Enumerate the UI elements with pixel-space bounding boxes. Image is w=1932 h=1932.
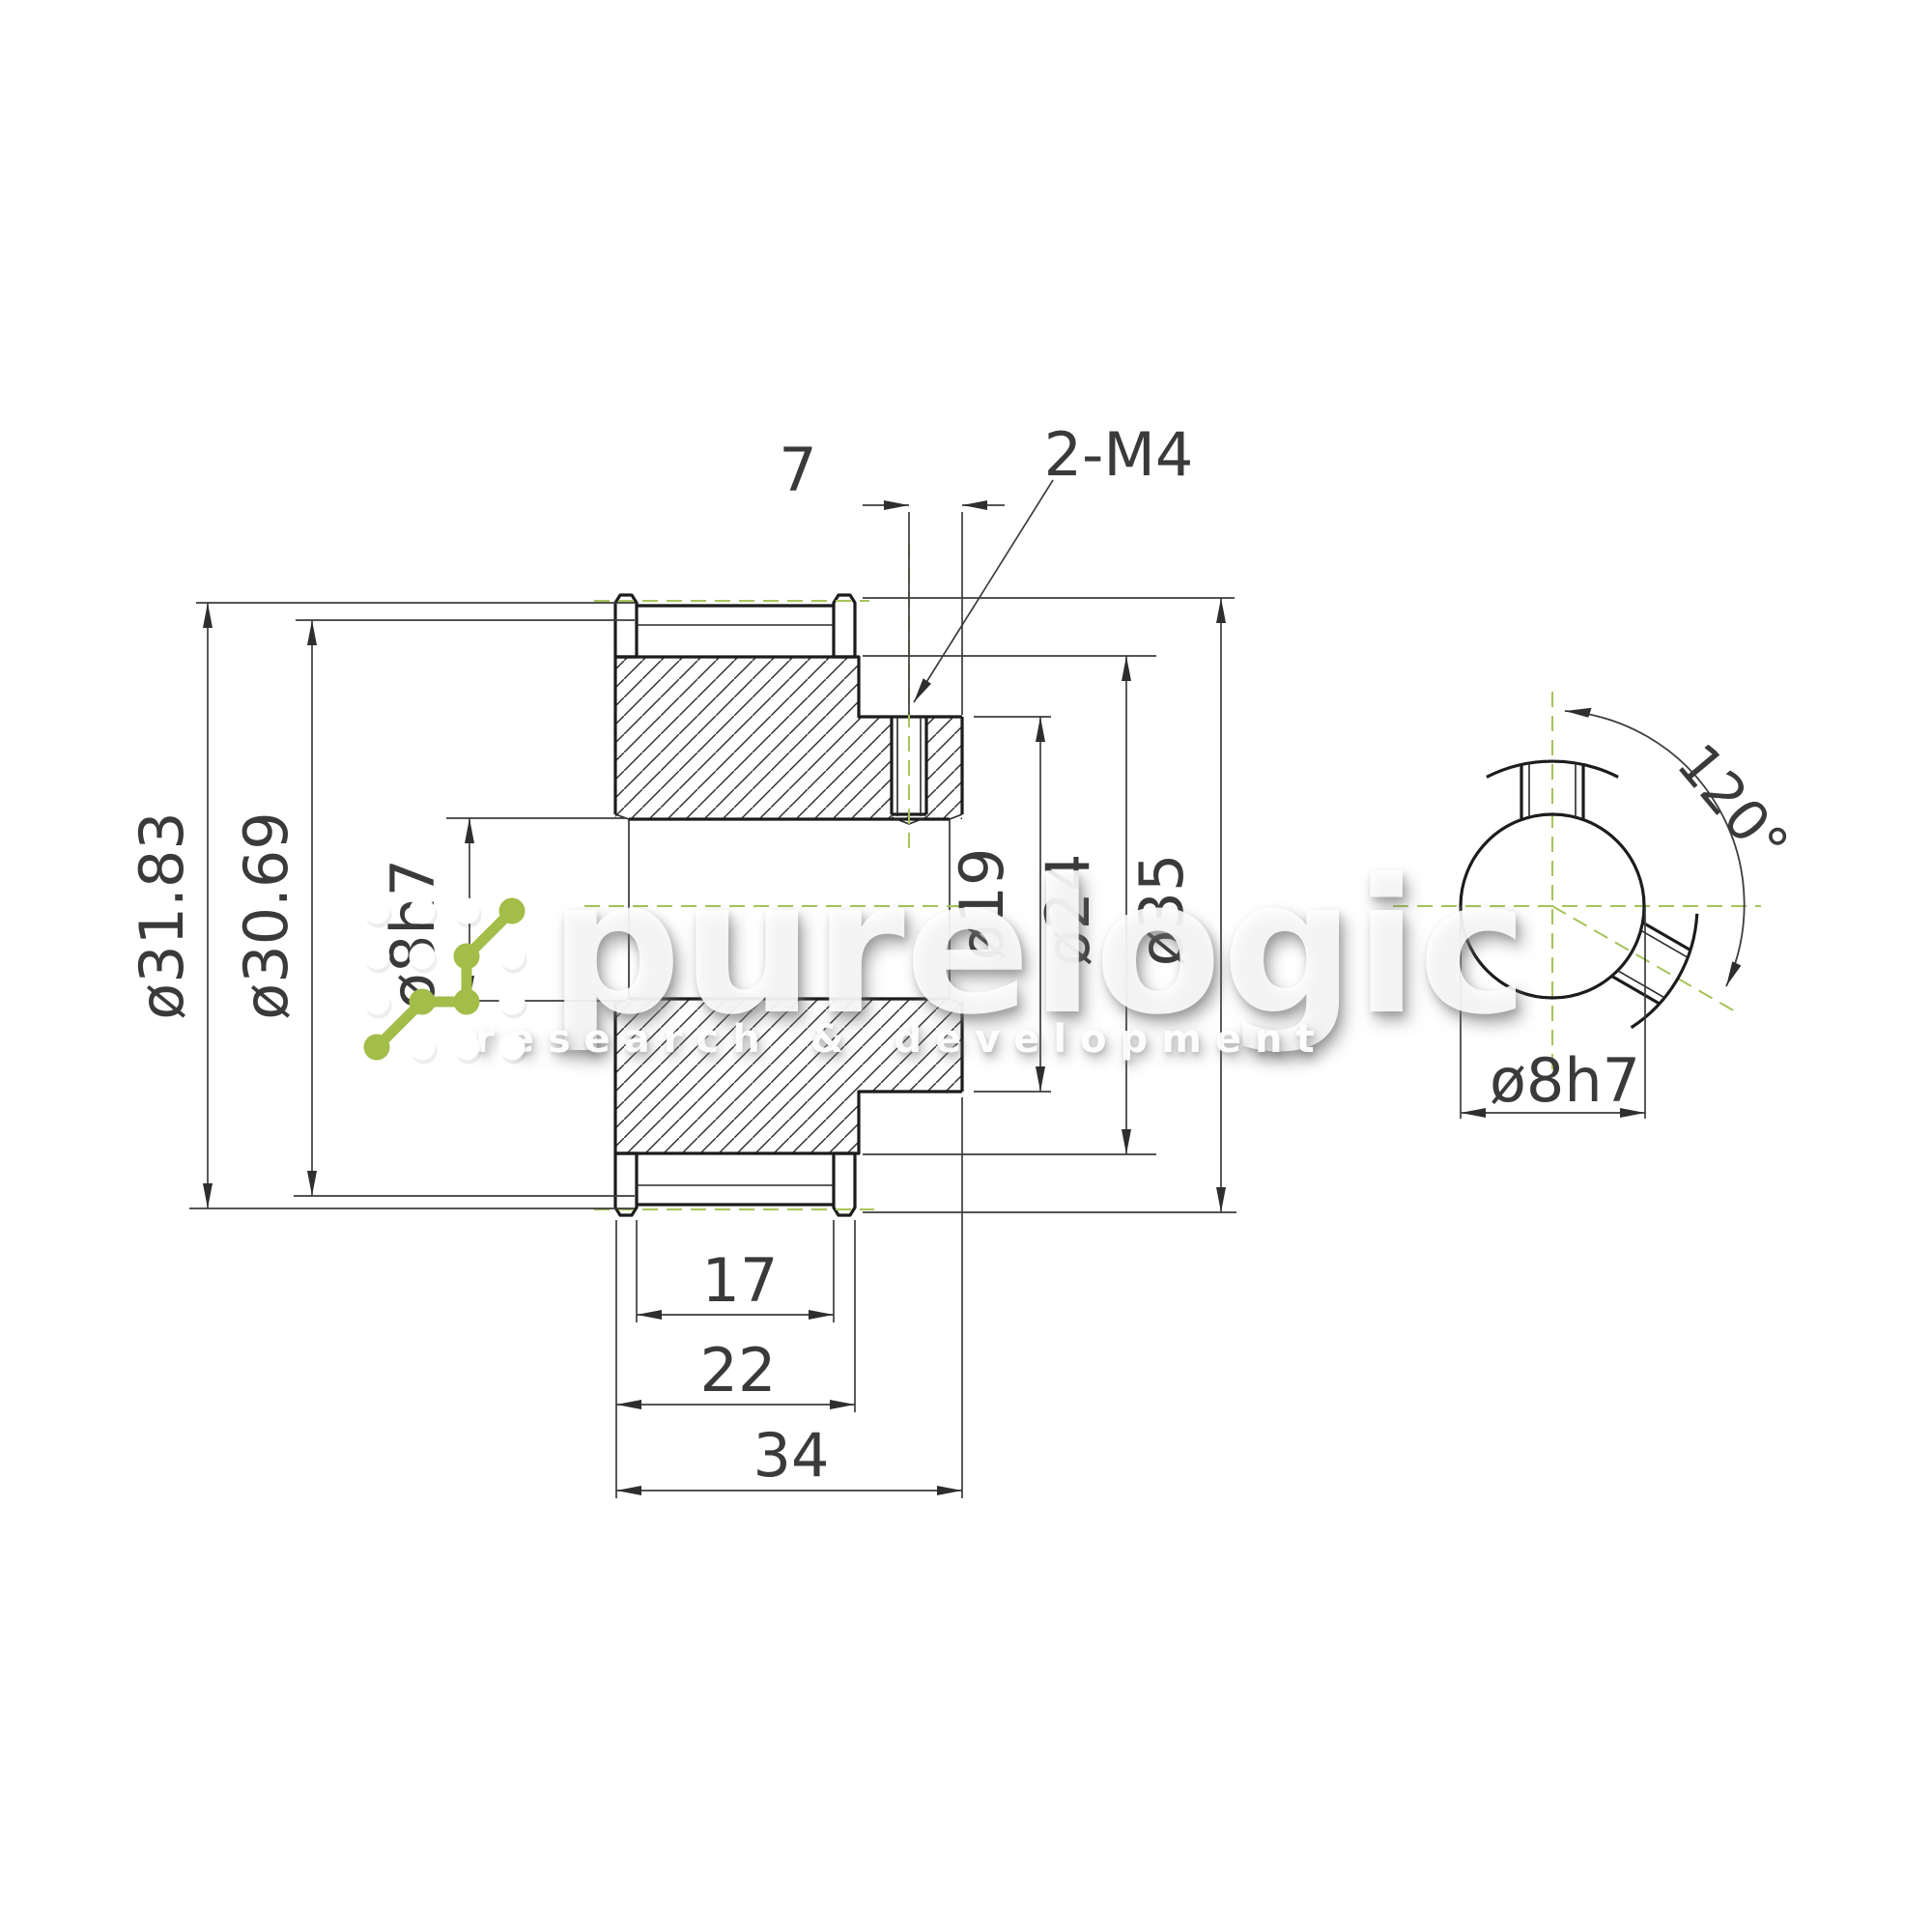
label-bore-left: ø8h7	[378, 859, 448, 1009]
label-bore-side: ø8h7	[1490, 1045, 1640, 1116]
leader-line-2m4	[914, 480, 1053, 702]
dimension-labels: ø31.83 ø30.69 ø8h7 ø19 ø24 ø35 7 2-M4 17…	[127, 419, 1802, 1491]
main-section-view	[584, 543, 980, 1215]
label-outer-diameter: ø30.69	[231, 811, 301, 1019]
label-hub-diameter: ø19	[947, 848, 1017, 961]
label-flange-diameter: ø35	[1126, 854, 1197, 967]
drawing-canvas: ø31.83 ø30.69 ø8h7 ø19 ø24 ø35 7 2-M4 17…	[0, 0, 1932, 1932]
label-shoulder-diameter: ø24	[1033, 854, 1103, 967]
label-flange-width: 22	[700, 1335, 777, 1406]
label-total-width: 34	[753, 1420, 830, 1491]
pulley-technical-drawing: ø31.83 ø30.69 ø8h7 ø19 ø24 ø35 7 2-M4 17…	[0, 0, 1932, 1932]
label-belt-width: 17	[702, 1245, 779, 1316]
label-width-top: 7	[779, 435, 816, 505]
label-pitch-diameter: ø31.83	[127, 811, 197, 1019]
setscrew-hole-lower	[1594, 893, 1711, 1036]
label-setscrew-angle: 120°	[1664, 731, 1802, 877]
label-thread-callout: 2-M4	[1044, 419, 1194, 490]
